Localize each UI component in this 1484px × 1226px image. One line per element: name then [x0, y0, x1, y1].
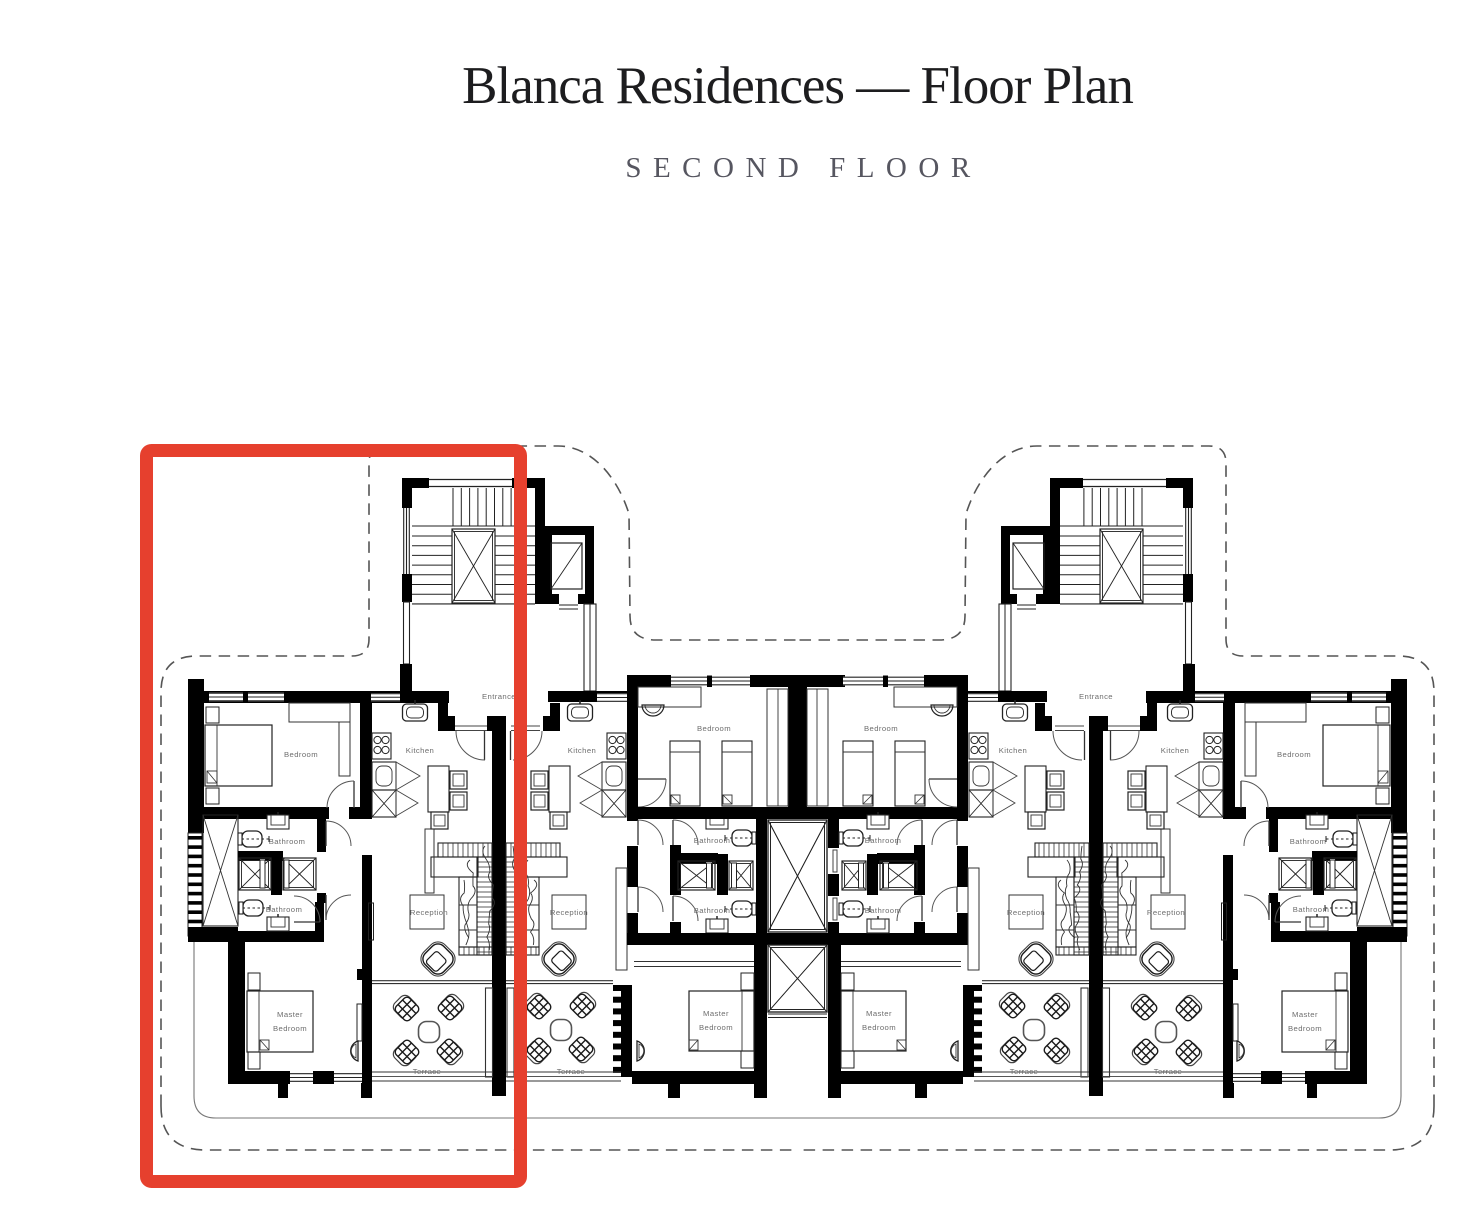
svg-text:Kitchen: Kitchen: [1161, 746, 1189, 755]
svg-text:Bedroom: Bedroom: [284, 750, 318, 759]
svg-text:Master: Master: [277, 1010, 303, 1019]
svg-text:Bedroom: Bedroom: [1277, 750, 1311, 759]
svg-text:Terrace: Terrace: [557, 1067, 585, 1076]
svg-text:Reception: Reception: [410, 908, 448, 917]
svg-text:Terrace: Terrace: [413, 1067, 441, 1076]
svg-text:Bedroom: Bedroom: [273, 1024, 307, 1033]
svg-text:Bedroom: Bedroom: [864, 724, 898, 733]
svg-text:Bathroom: Bathroom: [694, 906, 731, 915]
svg-text:Bathroom: Bathroom: [1293, 905, 1330, 914]
svg-text:Terrace: Terrace: [1010, 1067, 1038, 1076]
svg-text:Bedroom: Bedroom: [1288, 1024, 1322, 1033]
svg-text:Entrance: Entrance: [1079, 692, 1113, 701]
svg-text:Kitchen: Kitchen: [568, 746, 596, 755]
svg-text:Master: Master: [866, 1009, 892, 1018]
svg-text:Bedroom: Bedroom: [699, 1023, 733, 1032]
svg-text:Reception: Reception: [1147, 908, 1185, 917]
svg-text:Terrace: Terrace: [1154, 1067, 1182, 1076]
svg-text:Reception: Reception: [550, 908, 588, 917]
svg-text:Blanca Residences — Floor Plan: Blanca Residences — Floor Plan: [462, 57, 1133, 115]
svg-text:Bathroom: Bathroom: [694, 836, 731, 845]
svg-text:Bathroom: Bathroom: [269, 837, 306, 846]
svg-text:Bathroom: Bathroom: [1290, 837, 1327, 846]
svg-text:Reception: Reception: [1007, 908, 1045, 917]
svg-text:Bathroom: Bathroom: [865, 836, 902, 845]
svg-text:Kitchen: Kitchen: [406, 746, 434, 755]
svg-text:Master: Master: [1292, 1010, 1318, 1019]
svg-text:Bathroom: Bathroom: [865, 906, 902, 915]
svg-text:Bedroom: Bedroom: [697, 724, 731, 733]
svg-text:Master: Master: [703, 1009, 729, 1018]
svg-text:Bedroom: Bedroom: [862, 1023, 896, 1032]
svg-text:Bathroom: Bathroom: [266, 905, 303, 914]
svg-text:Kitchen: Kitchen: [999, 746, 1027, 755]
svg-text:SECOND FLOOR: SECOND FLOOR: [625, 152, 981, 184]
svg-text:Entrance: Entrance: [482, 692, 516, 701]
